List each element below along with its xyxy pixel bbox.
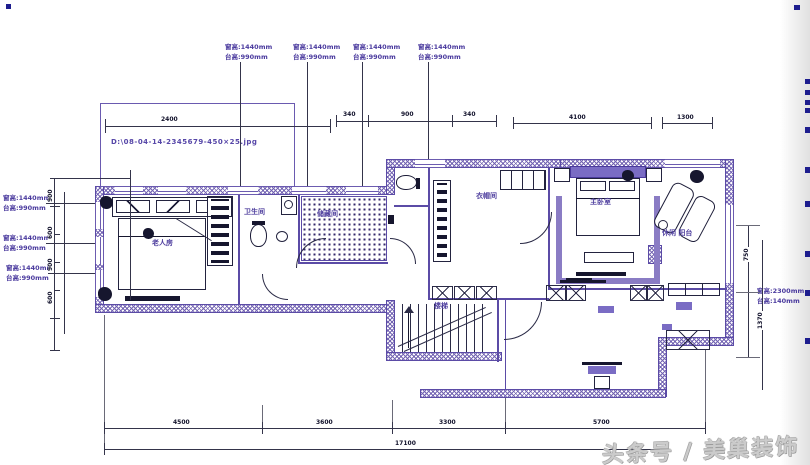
interior-wall [394, 205, 430, 207]
dimension-tick [262, 422, 263, 434]
room-label-balcony: 休闲 阳台 [662, 229, 692, 237]
dimension-label: 1370 [758, 311, 764, 330]
wall-segment [420, 389, 666, 398]
truncated-text-mark [805, 108, 810, 113]
dimension-tick [651, 117, 652, 129]
dimension-tick [496, 115, 497, 127]
truncated-text-mark [805, 251, 810, 257]
floorplan-photo: 老人房 卫生间 储藏间 衣帽间 主卧室 [0, 0, 810, 465]
washer-drum [284, 200, 293, 209]
sill-height-label: 台高:990mm [353, 52, 400, 62]
sill-height-label: 台高:990mm [3, 243, 50, 253]
dimension-tick [513, 117, 514, 129]
truncated-text-mark [805, 90, 810, 95]
pillow [156, 200, 190, 213]
extension-line [736, 357, 760, 358]
pillow [609, 181, 635, 191]
truncated-text-mark [6, 4, 11, 9]
leader-line [307, 62, 308, 186]
dimension-tick [392, 422, 393, 434]
window-height-label: 窗高:1440mm [353, 42, 400, 52]
closet-hangers [433, 180, 451, 262]
dimension-label: 3600 [315, 420, 334, 426]
wall-segment [386, 352, 502, 361]
extension-line [130, 170, 131, 300]
dimension-tick [330, 119, 331, 133]
room-label-closet: 衣帽间 [476, 192, 497, 200]
leader-line [428, 62, 429, 159]
dimension-tick [50, 318, 60, 319]
dimension-label: 900 [400, 112, 415, 118]
window-annotation: 窗高:1440mm 台高:990mm [353, 42, 400, 62]
dimension-line [748, 225, 749, 357]
window-height-label: 窗高:1440mm [225, 42, 272, 52]
watermark: 头条号 / 美巢装饰 [602, 429, 800, 465]
nightstand [646, 168, 662, 182]
plant-icon [690, 170, 704, 183]
window-height-label: 窗高:2300mm [757, 286, 804, 296]
dimension-label: 600 [48, 290, 54, 305]
wardrobe-hangers [207, 196, 233, 266]
sink-icon [276, 231, 288, 242]
dimension-tick [50, 206, 60, 207]
ceiling-fan-icon [143, 228, 154, 239]
room-label-storage: 储藏间 [316, 210, 339, 218]
closet-shelves [500, 170, 546, 190]
dimension-tick [50, 350, 60, 351]
sill-height-label: 台高:990mm [418, 52, 465, 62]
window [292, 186, 326, 195]
dimension-tick [452, 115, 453, 127]
electrical-box [388, 215, 394, 224]
extension-line [736, 292, 760, 293]
dimension-label: 900 [48, 257, 54, 272]
interior-wall [497, 300, 499, 362]
dimension-line [104, 428, 705, 429]
room-label-bedroom2: 老人房 [152, 239, 173, 247]
furniture-block [676, 302, 692, 310]
dimension-line [336, 121, 496, 122]
dimension-tick [104, 422, 105, 434]
leader-line [362, 62, 363, 186]
window-height-label: 窗高:1440mm [3, 233, 50, 243]
window [95, 237, 104, 264]
window [415, 159, 445, 168]
desk [588, 366, 616, 374]
wardrobe [666, 330, 710, 350]
pillow [116, 200, 150, 213]
interior-wall [428, 168, 430, 300]
tv-cabinet [576, 272, 626, 276]
interior-wall [548, 168, 550, 290]
dimension-label: 5700 [592, 420, 611, 426]
dimension-line [662, 123, 712, 124]
dimension-label: 2400 [160, 117, 179, 123]
window [158, 186, 186, 195]
sill-height-label: 台高:990mm [225, 52, 272, 62]
dimension-label: 750 [744, 247, 750, 262]
extension-line [736, 225, 760, 226]
dimension-tick [105, 119, 106, 133]
furniture-block [598, 306, 614, 313]
dimension-label: 4500 [172, 420, 191, 426]
truncated-text-mark [805, 100, 810, 105]
dimension-line [105, 126, 330, 127]
window-annotation: 窗高:1440mm 台高:990mm [225, 42, 272, 62]
truncated-text-mark [805, 127, 810, 133]
dimension-tick [104, 443, 105, 455]
dimension-tick [336, 115, 337, 127]
dimension-label: 340 [462, 112, 477, 118]
plant-icon [100, 196, 113, 209]
sill-height-label: 台高:990mm [3, 203, 50, 213]
toilet-tank [416, 178, 420, 189]
toilet-icon [250, 224, 267, 247]
headboard [570, 166, 646, 178]
window-annotation: 窗高:1440mm 台高:990mm [293, 42, 340, 62]
cabinet [432, 286, 453, 300]
truncated-text-mark [794, 5, 800, 10]
stair-arrow-line [408, 312, 409, 348]
extension-line [54, 178, 130, 179]
window [346, 186, 378, 195]
window [115, 186, 143, 195]
room-label-stairs: 楼梯 [434, 302, 448, 310]
dimension-line [54, 178, 55, 350]
dimension-label: 1300 [676, 115, 695, 121]
toilet-tank [252, 221, 265, 225]
window-annotation: 窗高:1440mm 台高:990mm [418, 42, 465, 62]
bed-line [118, 236, 206, 237]
leader-line [48, 273, 95, 274]
dimension-line [513, 123, 651, 124]
room-label-master: 主卧室 [590, 198, 611, 206]
desk-top [582, 362, 622, 365]
dimension-tick [505, 422, 506, 434]
plant-icon [622, 170, 634, 181]
door-swing [504, 302, 542, 340]
tv-cabinet [125, 296, 180, 301]
dimension-tick [368, 115, 369, 127]
sill-height-label: 台高:140mm [757, 296, 804, 306]
window-height-label: 窗高:1440mm [418, 42, 465, 52]
dimension-line [104, 449, 660, 450]
desk-pedestal [594, 376, 610, 389]
dimension-label: 3300 [438, 420, 457, 426]
dimension-tick [662, 117, 663, 129]
nightstand [554, 168, 570, 182]
cabinet [454, 286, 475, 300]
window-annotation: 窗高:1440mm 台高:990mm [3, 233, 50, 253]
pillow [580, 181, 606, 191]
leader-line [240, 62, 241, 186]
stair-up-arrow-icon [404, 306, 414, 313]
wardrobe [647, 285, 664, 301]
dimension-label: 900 [48, 188, 54, 203]
dimension-line [64, 192, 65, 334]
window-height-label: 窗高:1440mm [293, 42, 340, 52]
window [725, 205, 734, 283]
sill-height-label: 台高:990mm [293, 52, 340, 62]
dimension-label: 17100 [394, 441, 417, 447]
truncated-text-mark [805, 338, 810, 344]
interior-wall [238, 195, 240, 304]
wardrobe [566, 285, 586, 301]
photo-edge-shade [780, 0, 810, 465]
bed-bench [584, 252, 634, 263]
wardrobe [546, 285, 566, 301]
truncated-text-mark [805, 201, 810, 207]
reference-image-path: D:\08-04-14-2345679-450×25.jpg [111, 138, 257, 146]
window-annotation: 窗高:2300mm 台高:140mm [757, 286, 804, 306]
wall-segment [725, 282, 734, 342]
toilet-icon [396, 175, 417, 190]
shelf-bar [560, 280, 606, 283]
window-annotation: 窗高:1440mm 台高:990mm [3, 193, 50, 213]
sill-height-label: 台高:990mm [6, 273, 53, 283]
wall-segment [725, 159, 734, 207]
dimension-label: 340 [342, 112, 357, 118]
extension-line [705, 350, 706, 432]
window-height-label: 窗高:1440mm [3, 193, 50, 203]
dimension-label: 600 [48, 225, 54, 240]
window [665, 159, 720, 168]
door-swing [390, 238, 416, 264]
plant-icon [98, 287, 112, 301]
door-swing [262, 274, 288, 300]
dimension-tick [712, 117, 713, 129]
cabinet [476, 286, 497, 300]
cabinet [668, 283, 720, 296]
truncated-text-mark [805, 167, 810, 173]
wall-segment [386, 159, 566, 168]
truncated-text-mark [805, 79, 810, 84]
room-label-bathroom: 卫生间 [244, 208, 265, 216]
dimension-label: 4100 [568, 115, 587, 121]
wall-segment [95, 304, 393, 313]
truncated-text-mark [805, 290, 810, 296]
window [228, 186, 258, 195]
wardrobe [630, 285, 647, 301]
